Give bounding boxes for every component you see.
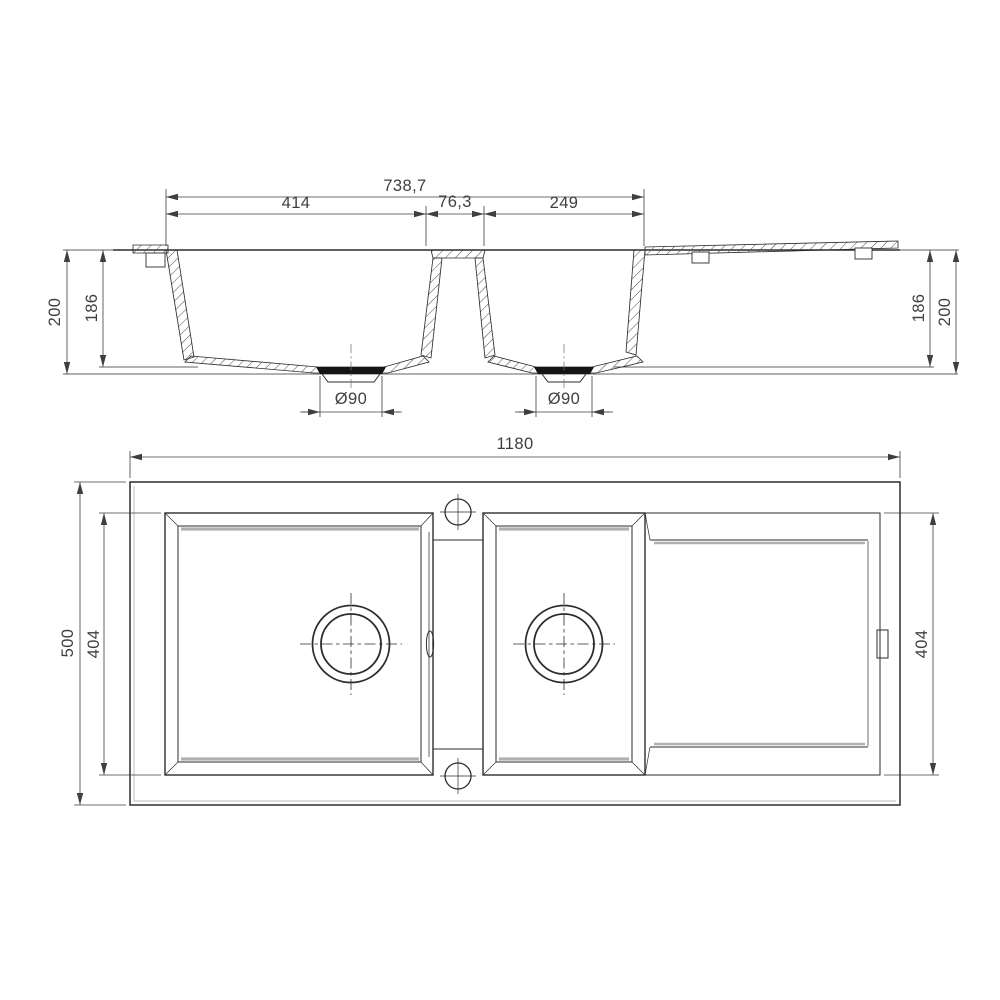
dim-bowl-depth-label: 404 — [85, 630, 103, 659]
plan-left-drain-crosshair — [300, 593, 402, 695]
dim-right-drain-label: Ø90 — [548, 390, 580, 408]
sink-technical-drawing: 738,7 414 76,3 249 200 186 186 200 Ø90 — [0, 0, 1000, 1000]
plan-dimensions: 1180 500 404 404 — [59, 435, 939, 805]
dim-left-bowl-width-label: 414 — [282, 194, 311, 212]
dim-left-drain-label: Ø90 — [335, 390, 367, 408]
drainer-clip-2 — [855, 248, 872, 259]
section-sink-body — [63, 241, 959, 388]
plan-right-drain-crosshair — [513, 593, 615, 695]
divider-cap — [431, 250, 485, 258]
right-bowl-right-wall — [626, 250, 645, 355]
plan-view: 1180 500 404 404 — [59, 435, 939, 805]
divider-left-leg — [421, 258, 442, 358]
divider-right-leg — [475, 258, 495, 358]
dim-left-outer-depth-label: 200 — [46, 298, 64, 327]
dim-overall-depth-label: 500 — [59, 629, 77, 658]
left-bowl-floor — [185, 356, 429, 373]
dim-total-width-label: 738,7 — [383, 177, 426, 195]
left-flange — [133, 245, 168, 253]
plan-divider-strip — [433, 540, 483, 749]
dim-left-inner-depth-label: 186 — [83, 294, 101, 323]
dim-right-bowl-width-label: 249 — [550, 194, 579, 212]
dim-right-outer-depth-label: 200 — [936, 298, 954, 327]
section-view: 738,7 414 76,3 249 200 186 186 200 Ø90 — [46, 177, 959, 417]
drainer-overflow-slot — [877, 630, 888, 658]
drainer-clip-1 — [692, 252, 709, 263]
tap-hole-bottom-crosshair — [440, 758, 476, 794]
left-clip — [146, 253, 165, 267]
tap-hole-top-crosshair — [440, 494, 476, 530]
plan-drainer-outline — [645, 513, 880, 775]
dim-drainer-depth-label: 404 — [913, 630, 931, 659]
plan-sink-body — [130, 482, 900, 805]
technical-drawing-page: 738,7 414 76,3 249 200 186 186 200 Ø90 — [0, 0, 1000, 1000]
dim-divider-width-label: 76,3 — [438, 193, 472, 211]
left-bowl-left-wall — [166, 250, 194, 360]
plan-left-bowl-inner — [178, 526, 421, 762]
dim-overall-width-label: 1180 — [496, 435, 533, 453]
dim-right-inner-depth-label: 186 — [910, 294, 928, 323]
